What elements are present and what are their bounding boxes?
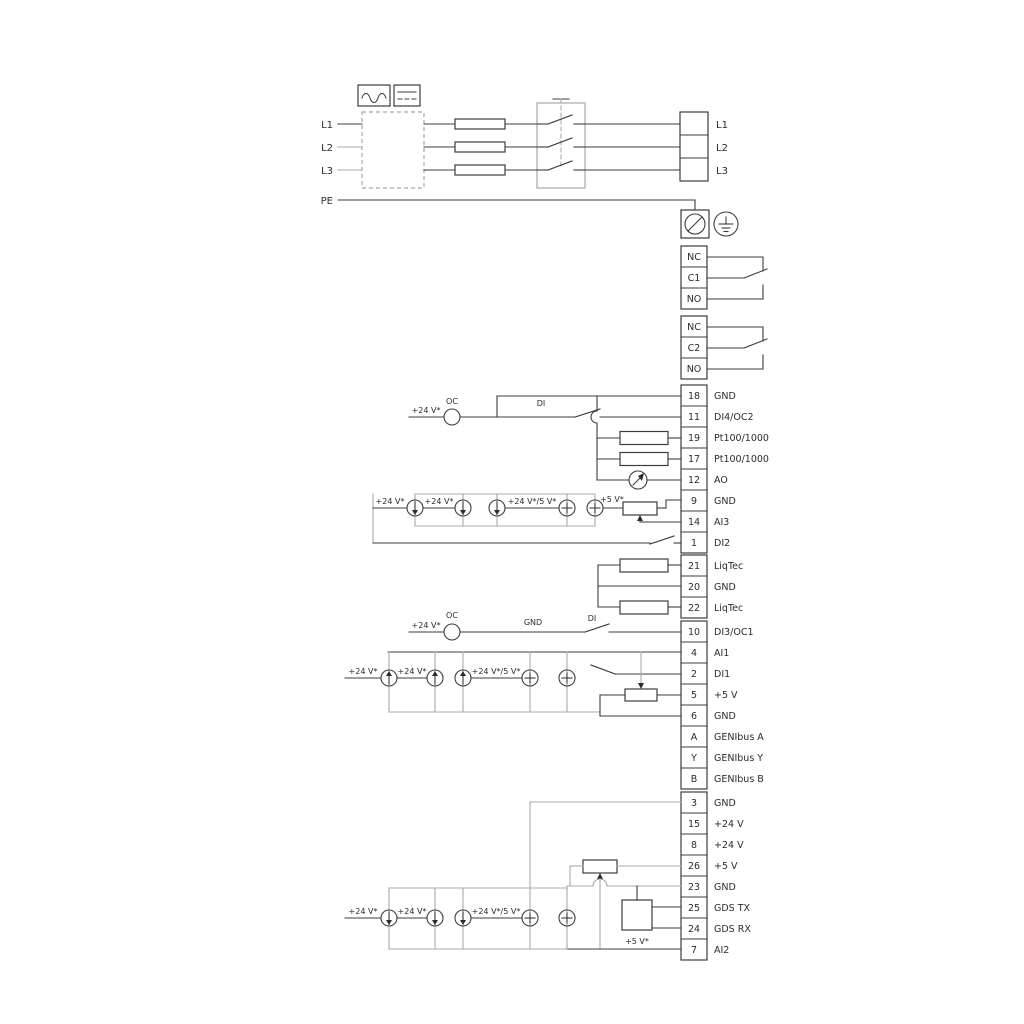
terminal-number: 8 — [691, 840, 697, 851]
terminal-label: DI1 — [714, 669, 730, 680]
terminal-number: 26 — [688, 861, 700, 872]
terminal-number: 23 — [688, 882, 700, 893]
power-label-l3: L3 — [321, 166, 333, 177]
voltage-label: +24 V* — [349, 667, 378, 676]
terminal-label: LiqTec — [714, 561, 743, 572]
terminal-label: GND — [714, 391, 736, 402]
terminal-label: +5 V — [714, 690, 738, 701]
terminal-label: L1 — [716, 120, 728, 131]
terminal-label: GENIbus Y — [714, 753, 763, 764]
terminal-number: 3 — [691, 798, 697, 809]
voltage-label: +24 V* — [398, 907, 427, 916]
dc-symbol-icon — [394, 85, 420, 106]
terminal-label: GND — [714, 582, 736, 593]
voltage-label: +5 V* — [625, 937, 649, 946]
terminal-number: 9 — [691, 496, 697, 507]
terminal-label: GENIbus B — [714, 774, 764, 785]
terminal-label: AO — [714, 475, 728, 486]
terminal-number: 12 — [688, 475, 700, 486]
relay-terminal: C1 — [688, 273, 701, 284]
pe-terminal-icon — [681, 210, 709, 238]
voltage-label: +24 V* — [376, 497, 405, 506]
relay-terminal: NO — [687, 364, 702, 375]
voltage-label: +24 V* — [412, 621, 441, 630]
di-label: DI — [537, 399, 546, 408]
wiring-diagram: L1 L2 L3 PE — [0, 0, 1024, 1024]
terminal-label: GND — [714, 882, 736, 893]
relay-terminal: NC — [687, 252, 701, 263]
terminal-label: Pt100/1000 — [714, 433, 769, 444]
terminal-number: 11 — [688, 412, 700, 423]
relay-terminal: NO — [687, 294, 702, 305]
terminal-label: AI1 — [714, 648, 729, 659]
terminal-label: +24 V — [714, 819, 744, 830]
power-label-l2: L2 — [321, 143, 333, 154]
voltage-label: +24 V* — [398, 667, 427, 676]
terminal-label: GDS TX — [714, 903, 751, 914]
terminal-label: DI4/OC2 — [714, 412, 754, 423]
gnd-label: GND — [524, 618, 542, 627]
di-label: DI — [588, 614, 597, 623]
oc-label: OC — [446, 397, 458, 406]
terminal-number: 4 — [691, 648, 697, 659]
mains-terminal-block: L1 L2 L3 — [680, 112, 728, 181]
terminal-label: GDS RX — [714, 924, 751, 935]
terminal-number: 2 — [691, 669, 697, 680]
voltage-label: +24 V* — [349, 907, 378, 916]
terminal-label: GENIbus A — [714, 732, 764, 743]
voltage-label: +24 V*/5 V* — [472, 667, 521, 676]
terminal-number: 20 — [688, 582, 700, 593]
terminal-label: DI2 — [714, 538, 730, 549]
terminal-number: 15 — [688, 819, 700, 830]
terminal-label: AI2 — [714, 945, 729, 956]
terminal-number: 21 — [688, 561, 700, 572]
terminal-number: 17 — [688, 454, 700, 465]
terminal-number: 1 — [691, 538, 697, 549]
power-label-l1: L1 — [321, 120, 333, 131]
relay-terminal: NC — [687, 322, 701, 333]
background — [0, 0, 1024, 1024]
terminal-label: GND — [714, 798, 736, 809]
voltage-label: +24 V* — [425, 497, 454, 506]
terminal-label: +24 V — [714, 840, 744, 851]
terminal-number: Y — [690, 753, 697, 764]
terminal-number: 24 — [688, 924, 700, 935]
wiring-diagram-page: L1 L2 L3 PE — [0, 0, 1024, 1024]
voltage-label: +5 V* — [600, 495, 624, 504]
terminal-label: LiqTec — [714, 603, 743, 614]
fuse-icons — [455, 119, 505, 175]
terminal-number: A — [691, 732, 698, 743]
oc-label: OC — [446, 611, 458, 620]
terminal-label: GND — [714, 711, 736, 722]
terminal-label: GND — [714, 496, 736, 507]
relay-terminal: C2 — [688, 343, 701, 354]
ac-symbol-icon — [358, 85, 390, 106]
terminal-number: 22 — [688, 603, 700, 614]
terminal-label: L3 — [716, 166, 728, 177]
terminal-number: 18 — [688, 391, 700, 402]
terminal-label: Pt100/1000 — [714, 454, 769, 465]
terminal-number: B — [691, 774, 698, 785]
terminal-number: 6 — [691, 711, 697, 722]
terminal-number: 7 — [691, 945, 697, 956]
power-label-pe: PE — [321, 196, 333, 207]
voltage-label: +24 V*/5 V* — [508, 497, 557, 506]
terminal-label: +5 V — [714, 861, 738, 872]
terminal-label: DI3/OC1 — [714, 627, 754, 638]
terminal-label: AI3 — [714, 517, 729, 528]
terminal-number: 14 — [688, 517, 700, 528]
voltage-label: +24 V*/5 V* — [472, 907, 521, 916]
terminal-number: 10 — [688, 627, 700, 638]
terminal-label: L2 — [716, 143, 728, 154]
voltage-label: +24 V* — [412, 406, 441, 415]
terminal-number: 5 — [691, 690, 697, 701]
terminal-number: 19 — [688, 433, 700, 444]
terminal-number: 25 — [688, 903, 700, 914]
